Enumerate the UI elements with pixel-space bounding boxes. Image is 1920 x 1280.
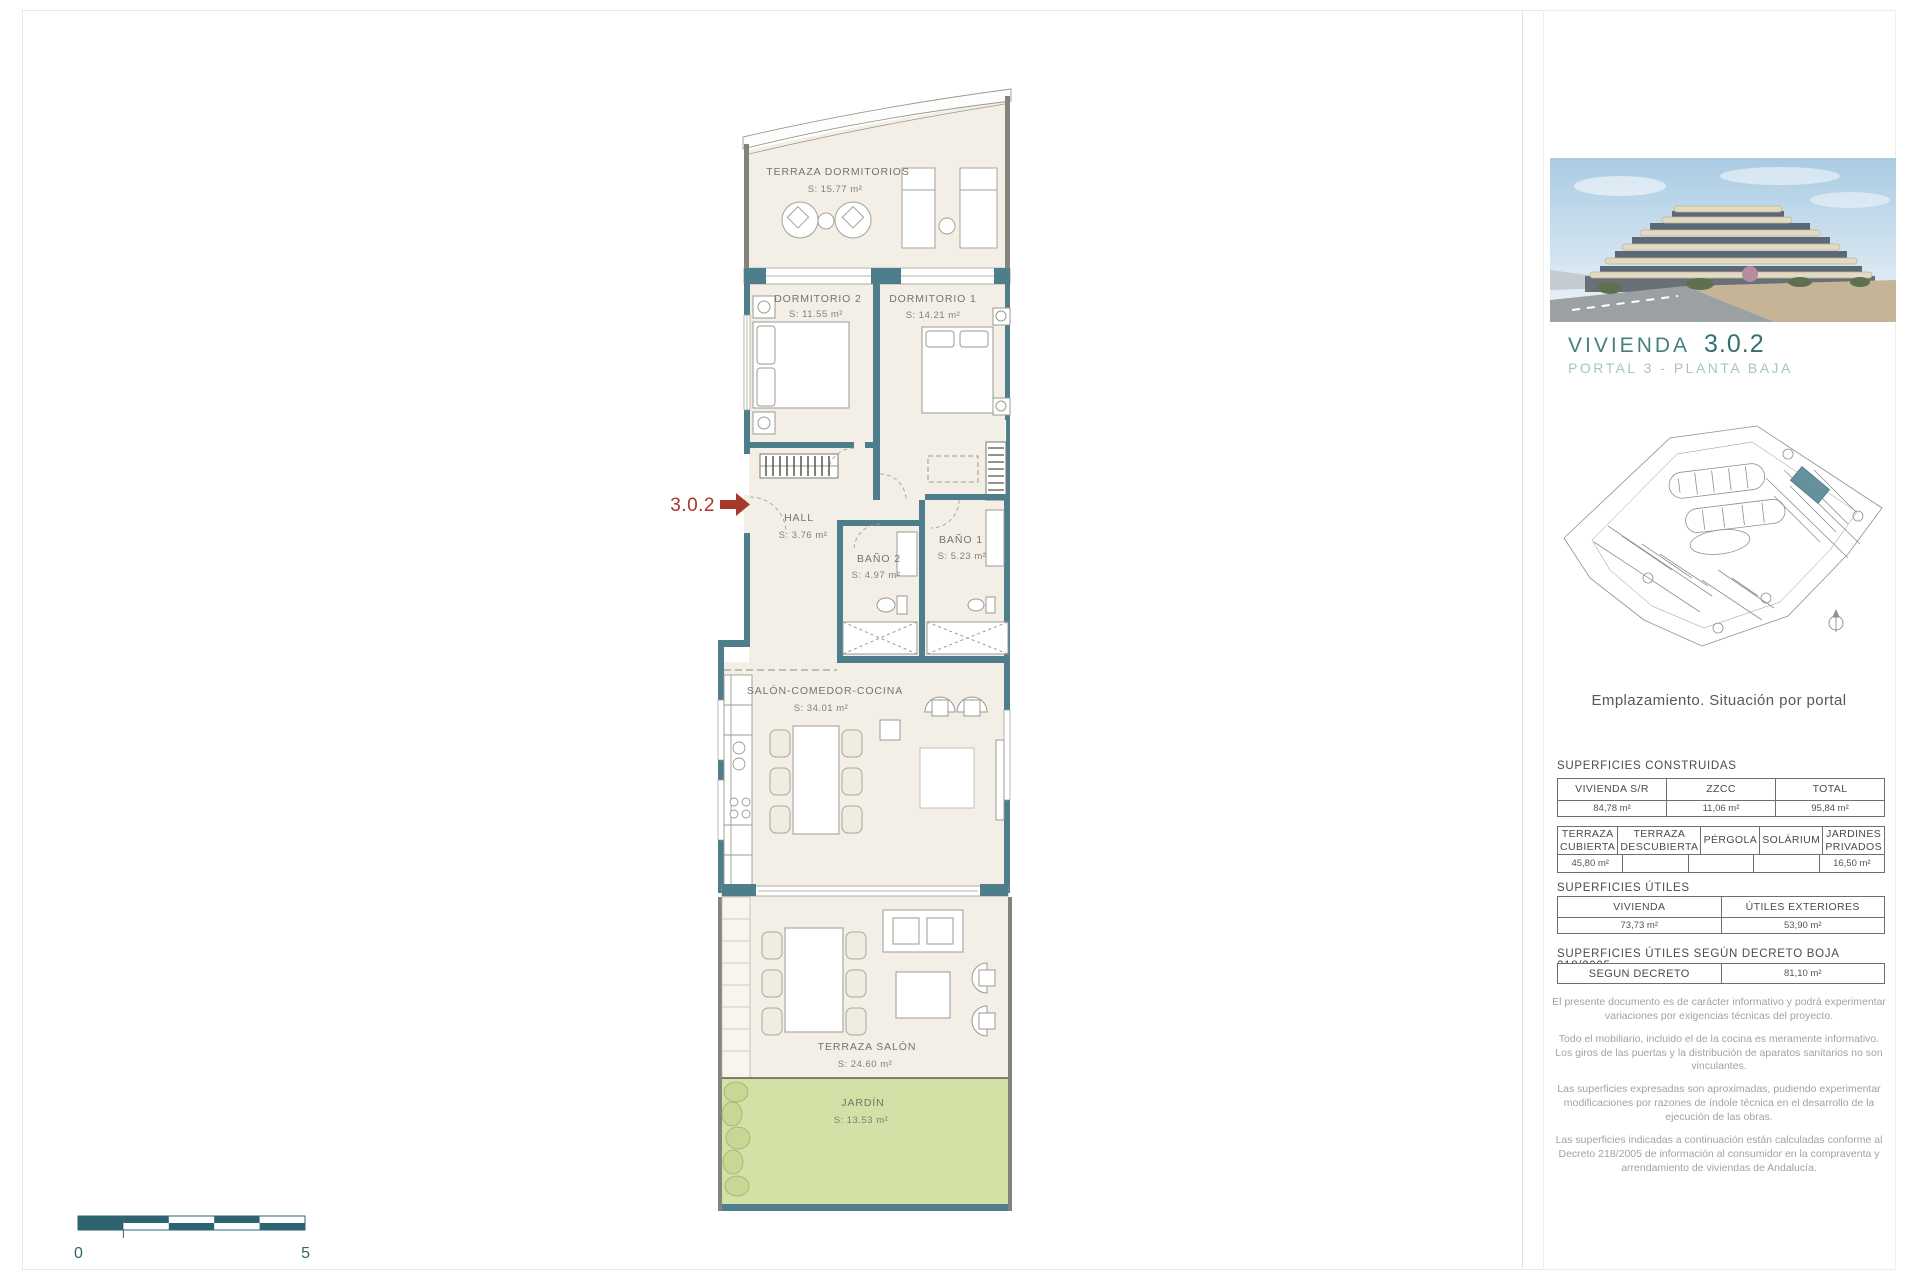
room-label-terraza-dormitorios: TERRAZA DORMITORIOS (766, 166, 910, 178)
table-construidas-1: VIVIENDA S/R ZZCC TOTAL 84,78 m² 11,06 m… (1557, 778, 1885, 817)
north-arrow-icon (1829, 610, 1843, 632)
table-value-cell (1753, 855, 1818, 872)
scale-bar: 0 5 (70, 1208, 320, 1268)
room-area-terraza-salon: S: 24.60 m² (838, 1059, 893, 1070)
dining-table-indoor (770, 726, 862, 834)
table-header-cell: TERRAZA CUBIERTA (1558, 827, 1617, 854)
floor-plan: TERRAZA DORMITORIOS S: 15.77 m² (560, 80, 1080, 1220)
unit-title-word: VIVIENDA (1568, 334, 1690, 357)
room-area-hall: S: 3.76 m² (779, 530, 828, 541)
table-header-cell: VIVIENDA S/R (1558, 779, 1666, 800)
room-label-bano-1: BAÑO 1 (939, 533, 983, 546)
wardrobe-hall (760, 454, 838, 478)
table-value-cell: 84,78 m² (1558, 801, 1666, 816)
table-header-cell: TOTAL (1775, 779, 1884, 800)
table-decreto: SEGUN DECRETO 81,10 m² (1557, 963, 1885, 984)
room-label-jardin: JARDÍN (841, 1096, 884, 1109)
plan-sheet-page: TERRAZA DORMITORIOS S: 15.77 m² (0, 0, 1920, 1280)
unit-subtitle: PORTAL 3 - PLANTA BAJA (1568, 360, 1793, 376)
room-label-dormitorio-1: DORMITORIO 1 (889, 293, 977, 305)
planter-strip (722, 897, 750, 1078)
table-value-cell: 16,50 m² (1819, 855, 1884, 872)
room-area-dormitorio-1: S: 14.21 m² (906, 310, 961, 321)
table-value-cell (1622, 855, 1687, 872)
table-header-cell: VIVIENDA (1558, 897, 1721, 917)
table-value-cell: 73,73 m² (1558, 918, 1721, 933)
room-label-terraza-salon: TERRAZA SALÓN (818, 1040, 917, 1053)
disclaimer-paragraph: Todo el mobiliario, incluido el de la co… (1549, 1033, 1889, 1075)
table-header-cell: JARDINES PRIVADOS (1822, 827, 1884, 854)
room-area-bano-2: S: 4.97 m² (852, 570, 901, 581)
table-utiles: VIVIENDA ÚTILES EXTERIORES 73,73 m² 53,9… (1557, 896, 1885, 934)
building-render-photo (1550, 158, 1896, 322)
kitchen-counter (724, 675, 752, 885)
table-construidas-2: TERRAZA CUBIERTA TERRAZA DESCUBIERTA PÉR… (1557, 826, 1885, 873)
heading-superficies-construidas: SUPERFICIES CONSTRUIDAS (1557, 760, 1737, 772)
highlighted-unit (1790, 467, 1829, 504)
room-area-bano-1: S: 5.23 m² (938, 551, 987, 562)
heading-superficies-utiles: SUPERFICIES ÚTILES (1557, 882, 1690, 894)
table-header-cell: ÚTILES EXTERIORES (1721, 897, 1885, 917)
unit-title: VIVIENDA3.0.2 (1568, 330, 1765, 359)
room-label-bano-2: BAÑO 2 (857, 552, 901, 565)
table-header-cell: SOLÁRIUM (1759, 827, 1822, 854)
bath1-shower (927, 622, 1008, 654)
flowering-tree (1742, 266, 1758, 282)
scale-start-label: 0 (74, 1245, 83, 1262)
bath1-sink (986, 510, 1004, 566)
disclaimer-paragraph: El presente documento es de carácter inf… (1549, 996, 1889, 1024)
site-plan-caption: Emplazamiento. Situación por portal (1543, 692, 1895, 709)
room-area-dormitorio-2: S: 11.55 m² (789, 309, 843, 320)
table-header-cell: ZZCC (1666, 779, 1775, 800)
table-value-cell: 81,10 m² (1721, 964, 1885, 983)
bath2-shower (843, 622, 917, 654)
room-label-salon: SALÓN-COMEDOR-COCINA (747, 684, 903, 697)
table-header-cell: TERRAZA DESCUBIERTA (1617, 827, 1700, 854)
panel-divider-line (1522, 10, 1523, 1268)
site-plan (1552, 420, 1892, 655)
room-area-jardin: S: 13.53 m² (834, 1115, 889, 1126)
info-panel: VIVIENDA3.0.2 PORTAL 3 - PLANTA BAJA (1543, 0, 1895, 1280)
table-value-cell: 95,84 m² (1775, 801, 1884, 816)
table-value-cell: 53,90 m² (1721, 918, 1885, 933)
room-area-terraza-dormitorios: S: 15.77 m² (808, 184, 863, 195)
disclaimer-paragraph: Las superficies expresadas son aproximad… (1549, 1083, 1889, 1125)
dining-table-outdoor (762, 928, 866, 1035)
table-value-cell: 45,80 m² (1558, 855, 1622, 872)
bedroom-window-band (744, 268, 1010, 284)
room-label-dormitorio-2: DORMITORIO 2 (774, 293, 862, 305)
disclaimer-paragraph: Las superficies indicadas a continuación… (1549, 1134, 1889, 1176)
unit-marker-label: 3.0.2 (670, 495, 715, 516)
table-value-cell: 11,06 m² (1666, 801, 1775, 816)
wardrobe-dormitorio-1 (986, 442, 1006, 500)
disclaimer-block: El presente documento es de carácter inf… (1549, 996, 1889, 1184)
table-header-cell: PÉRGOLA (1700, 827, 1759, 854)
unit-title-number: 3.0.2 (1704, 330, 1765, 358)
room-area-salon: S: 34.01 m² (794, 703, 849, 714)
scale-end-label: 5 (301, 1245, 310, 1262)
table-header-cell: SEGUN DECRETO (1558, 964, 1721, 983)
room-label-hall: HALL (784, 512, 814, 524)
table-value-cell (1688, 855, 1753, 872)
scale-bar-segments (78, 1216, 305, 1238)
unit-marker: 3.0.2 (670, 493, 750, 516)
jardin-room: JARDÍN S: 13.53 m² (718, 1078, 1012, 1211)
